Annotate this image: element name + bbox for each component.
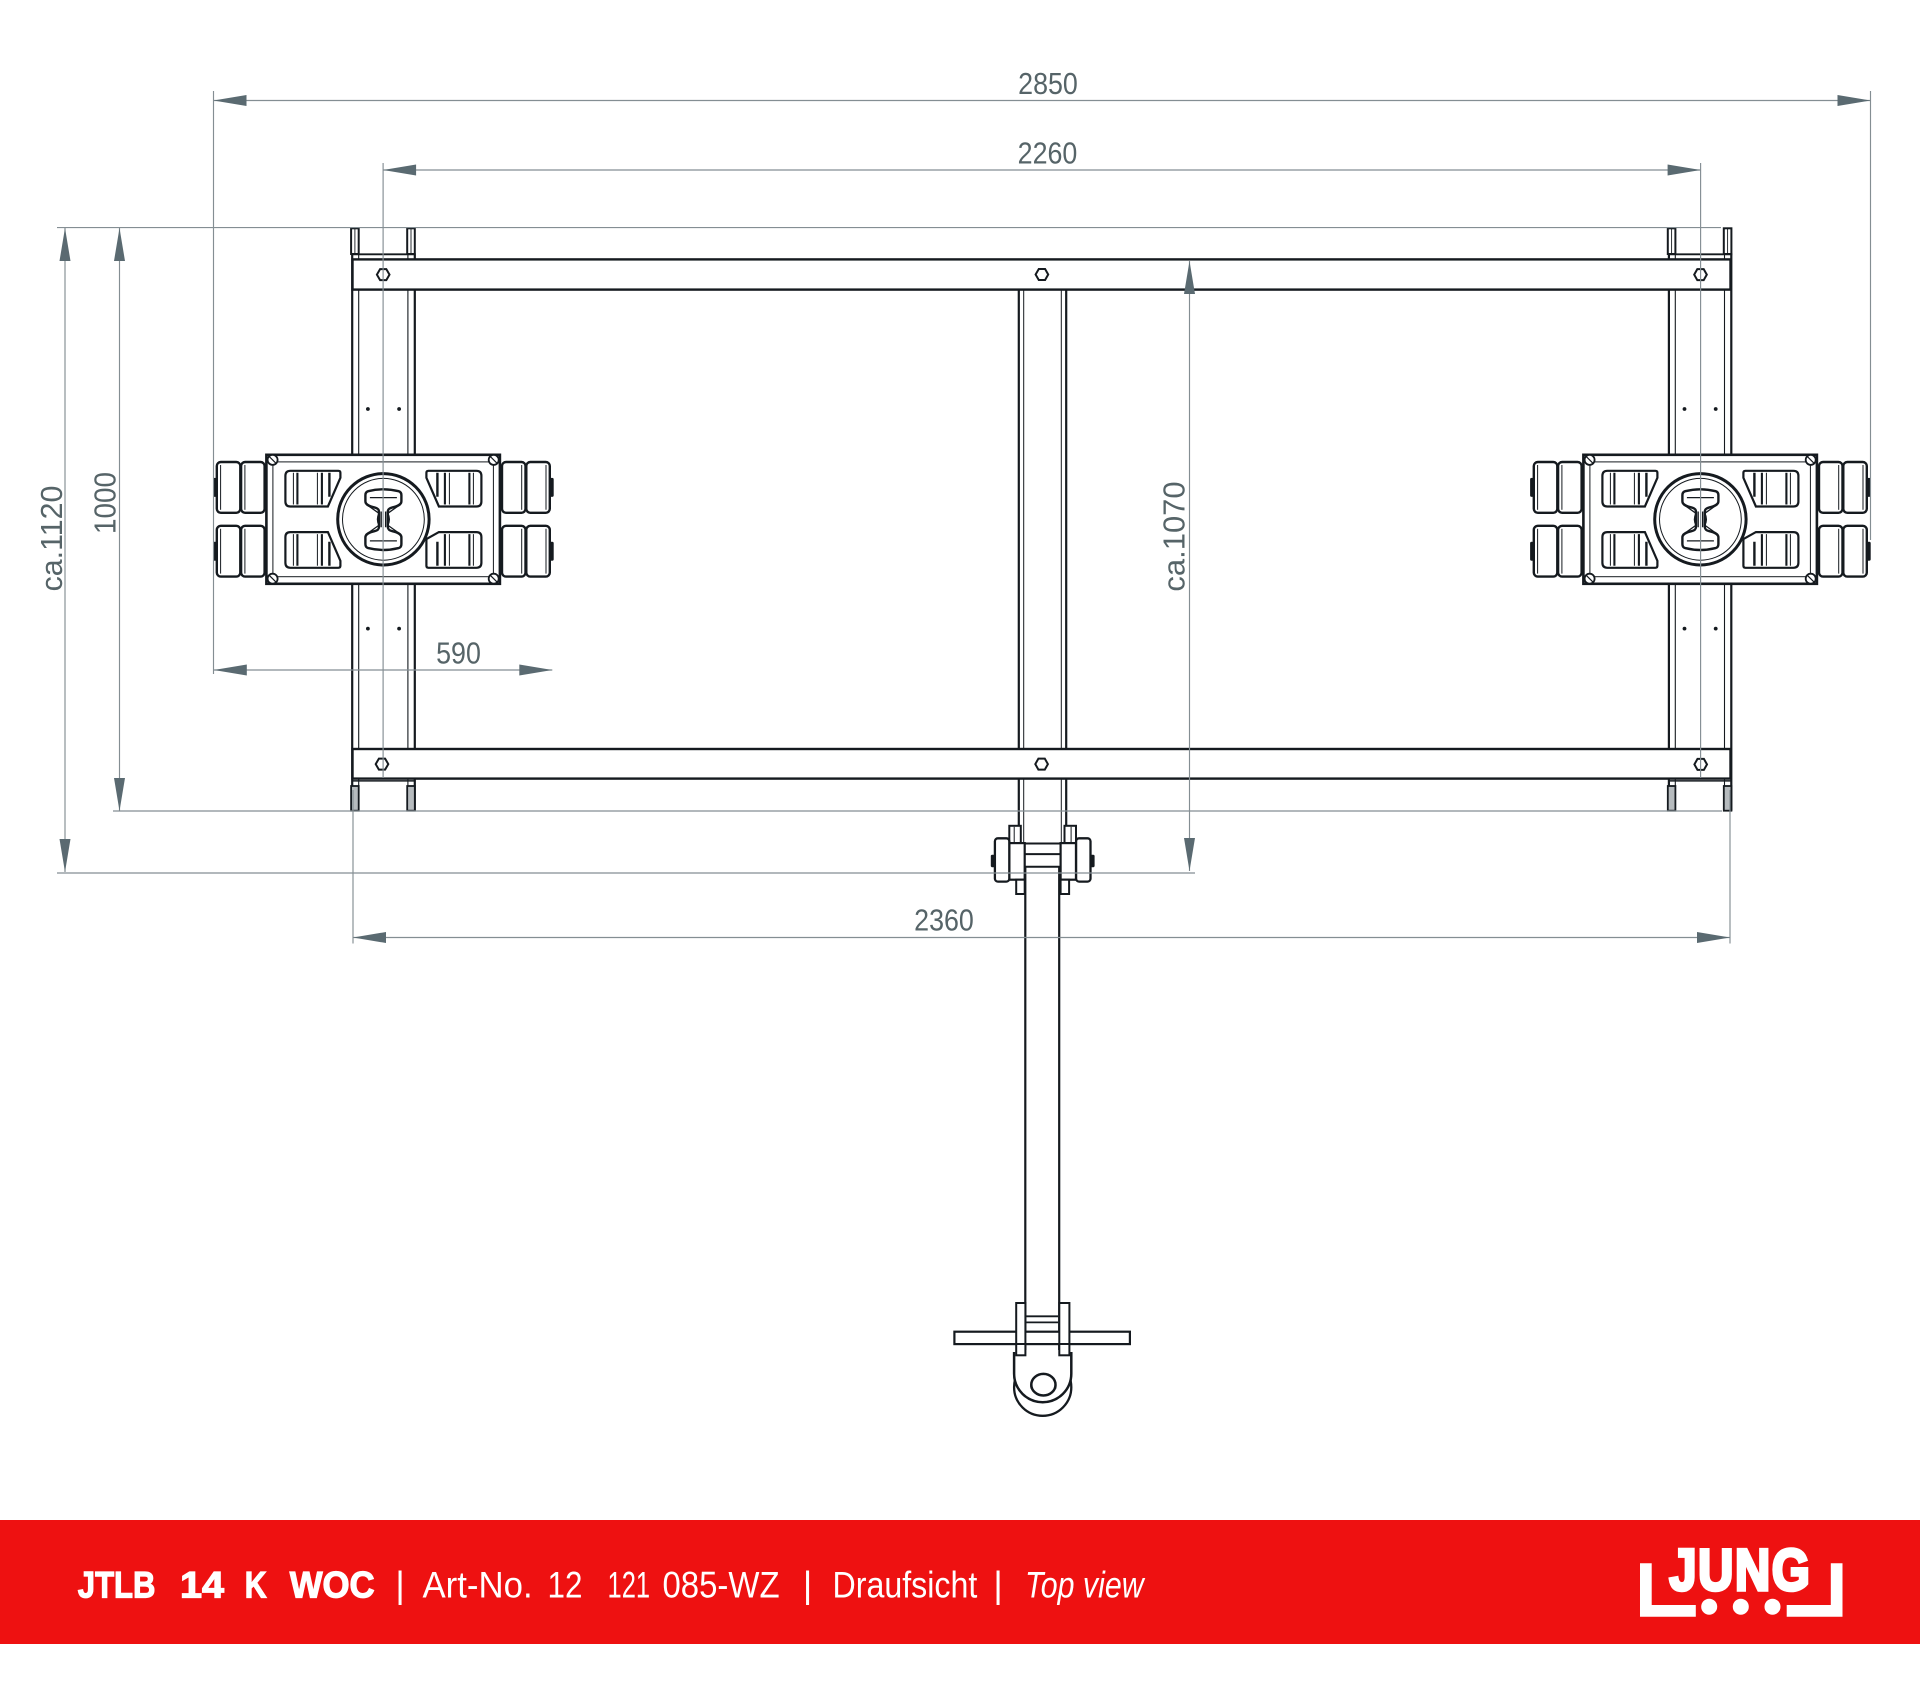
- svg-text:2850: 2850: [1018, 67, 1078, 101]
- svg-text:WOC: WOC: [290, 1565, 375, 1606]
- svg-text:|: |: [993, 1565, 1003, 1606]
- svg-text:085-WZ: 085-WZ: [663, 1565, 780, 1606]
- svg-text:ca.1070: ca.1070: [1157, 481, 1192, 591]
- svg-text:JUNG: JUNG: [1669, 1539, 1811, 1603]
- svg-text:12: 12: [548, 1565, 583, 1606]
- svg-text:K: K: [245, 1565, 267, 1607]
- svg-text:Art-No.: Art-No.: [423, 1565, 533, 1606]
- svg-text:590: 590: [436, 637, 481, 671]
- svg-text:|: |: [803, 1565, 813, 1606]
- svg-text:14: 14: [180, 1565, 225, 1607]
- svg-text:JTLB: JTLB: [78, 1565, 156, 1606]
- svg-text:121: 121: [608, 1564, 651, 1606]
- svg-text:Top view: Top view: [1025, 1565, 1146, 1607]
- svg-text:|: |: [395, 1565, 405, 1606]
- svg-text:1000: 1000: [88, 472, 123, 534]
- svg-text:2260: 2260: [1018, 137, 1078, 171]
- svg-text:2360: 2360: [914, 904, 974, 938]
- svg-text:Draufsicht: Draufsicht: [833, 1565, 978, 1606]
- svg-text:ca.1120: ca.1120: [34, 486, 69, 592]
